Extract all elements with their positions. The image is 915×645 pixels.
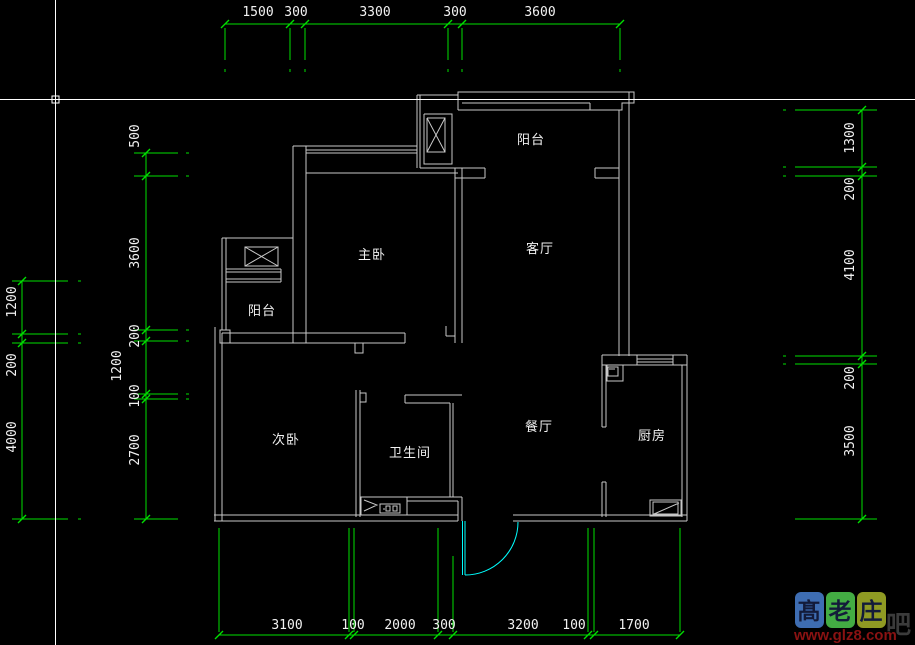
watermark-char: 髙 (798, 598, 821, 625)
watermark-char: 庄 (860, 598, 883, 625)
dim-label: 1200 (110, 350, 125, 381)
room-label-balcony-left: 阳台 (248, 304, 276, 319)
dim-label: 100 (562, 618, 585, 633)
dim-label: 3600 (128, 237, 143, 268)
dim-label: 3200 (507, 618, 538, 633)
dim-label: 4100 (843, 249, 858, 280)
dim-label: 3600 (524, 5, 555, 20)
dim-label: 2000 (384, 618, 415, 633)
dim-label: 4000 (5, 421, 20, 452)
room-label-second-bedroom: 次卧 (272, 432, 300, 448)
dim-label: 1300 (843, 122, 858, 153)
dim-label: 1500 (242, 5, 273, 20)
dim-label: 200 (843, 366, 858, 389)
watermark-url: www.glz8.com (793, 627, 897, 644)
dim-label: 100 (128, 384, 143, 407)
room-label-dining-room: 餐厅 (525, 419, 553, 435)
dim-labels-left-outer: 1200 200 4000 (5, 286, 20, 452)
dim-label: 100 (341, 618, 364, 633)
room-label-bathroom: 卫生间 (389, 446, 431, 461)
dim-label: 1700 (618, 618, 649, 633)
dim-label: 200 (843, 177, 858, 200)
dim-label: 2700 (128, 434, 143, 465)
room-label-kitchen: 厨房 (638, 428, 666, 444)
cad-canvas[interactable]: 1500 300 3300 300 3600 3100 100 2000 300… (0, 0, 915, 645)
watermark-char: 老 (828, 599, 852, 625)
dim-label: 300 (443, 5, 466, 20)
room-label-living-room: 客厅 (526, 241, 554, 257)
dim-label: 3500 (843, 425, 858, 456)
dim-label: 300 (284, 5, 307, 20)
room-label-balcony-top: 阳台 (517, 133, 545, 148)
dim-label: 3300 (359, 5, 390, 20)
room-label-master-bedroom: 主卧 (358, 248, 386, 263)
dim-label: 300 (432, 618, 455, 633)
dim-label: 200 (128, 324, 143, 347)
dim-label: 200 (5, 353, 20, 376)
dim-label: 1200 (5, 286, 20, 317)
dim-label: 3100 (271, 618, 302, 633)
dim-label: 500 (128, 124, 143, 147)
